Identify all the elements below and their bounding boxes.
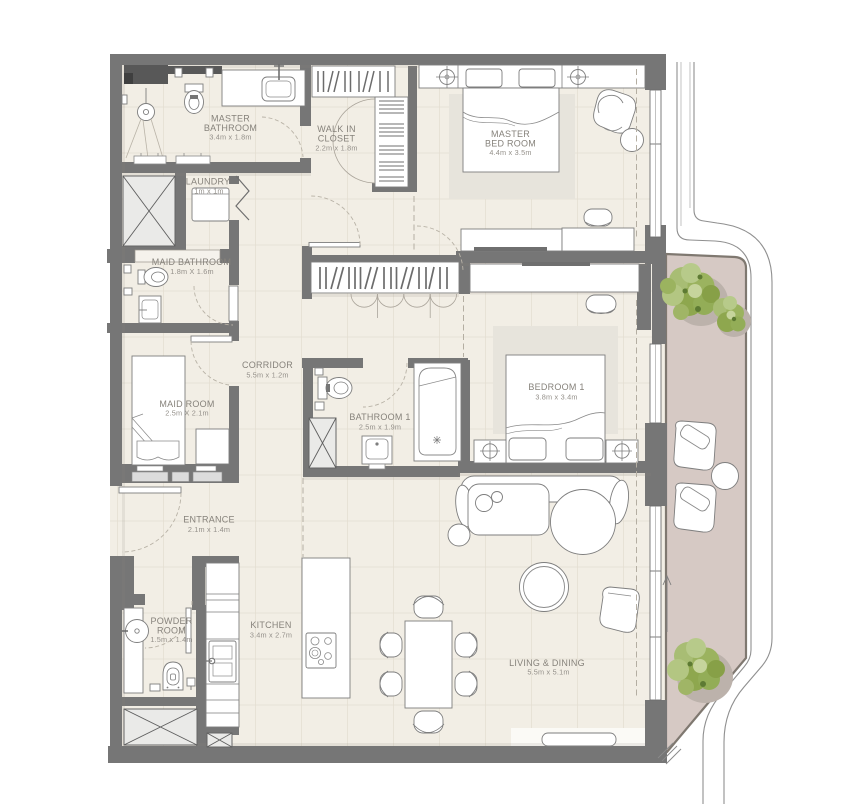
svg-text:BED ROOM: BED ROOM [485, 139, 536, 149]
svg-text:2.5m X 2.1m: 2.5m X 2.1m [165, 409, 209, 418]
svg-text:MAID ROOM: MAID ROOM [159, 399, 214, 409]
svg-text:CLOSET: CLOSET [318, 134, 356, 144]
svg-text:ENTRANCE: ENTRANCE [183, 515, 235, 525]
svg-text:MAID BATHROOM: MAID BATHROOM [152, 257, 232, 267]
svg-text:1.8m X 1.6m: 1.8m X 1.6m [170, 267, 214, 276]
svg-text:1m x 1m: 1m x 1m [194, 187, 223, 196]
svg-text:BATHROOM: BATHROOM [204, 123, 257, 133]
svg-text:BATHROOM 1: BATHROOM 1 [349, 412, 410, 422]
svg-text:CORRIDOR: CORRIDOR [242, 360, 293, 370]
svg-text:LAUNDRY: LAUNDRY [186, 177, 231, 187]
svg-text:3.4m x 1.8m: 3.4m x 1.8m [209, 133, 251, 142]
svg-text:POWDER: POWDER [151, 616, 193, 626]
svg-text:MASTER: MASTER [491, 129, 530, 139]
svg-text:1.5m x 1.4m: 1.5m x 1.4m [150, 635, 192, 644]
svg-text:ROOM: ROOM [157, 626, 186, 636]
svg-text:5.5m x 1.2m: 5.5m x 1.2m [246, 371, 288, 380]
svg-text:BEDROOM 1: BEDROOM 1 [528, 382, 584, 392]
svg-text:3.4m x 2.7m: 3.4m x 2.7m [250, 631, 292, 640]
svg-text:2.1m x 1.4m: 2.1m x 1.4m [188, 525, 230, 534]
svg-text:KITCHEN: KITCHEN [250, 620, 291, 630]
svg-text:MASTER: MASTER [211, 114, 250, 124]
svg-text:LIVING & DINING: LIVING & DINING [509, 658, 585, 668]
svg-text:3.8m x 3.4m: 3.8m x 3.4m [535, 393, 577, 402]
svg-text:WALK IN: WALK IN [317, 124, 355, 134]
svg-text:5.5m x 5.1m: 5.5m x 5.1m [527, 668, 569, 677]
svg-text:2.2m x 1.8m: 2.2m x 1.8m [315, 144, 357, 153]
svg-text:2.5m x 1.9m: 2.5m x 1.9m [359, 423, 401, 432]
svg-text:4.4m x 3.5m: 4.4m x 3.5m [489, 148, 531, 157]
